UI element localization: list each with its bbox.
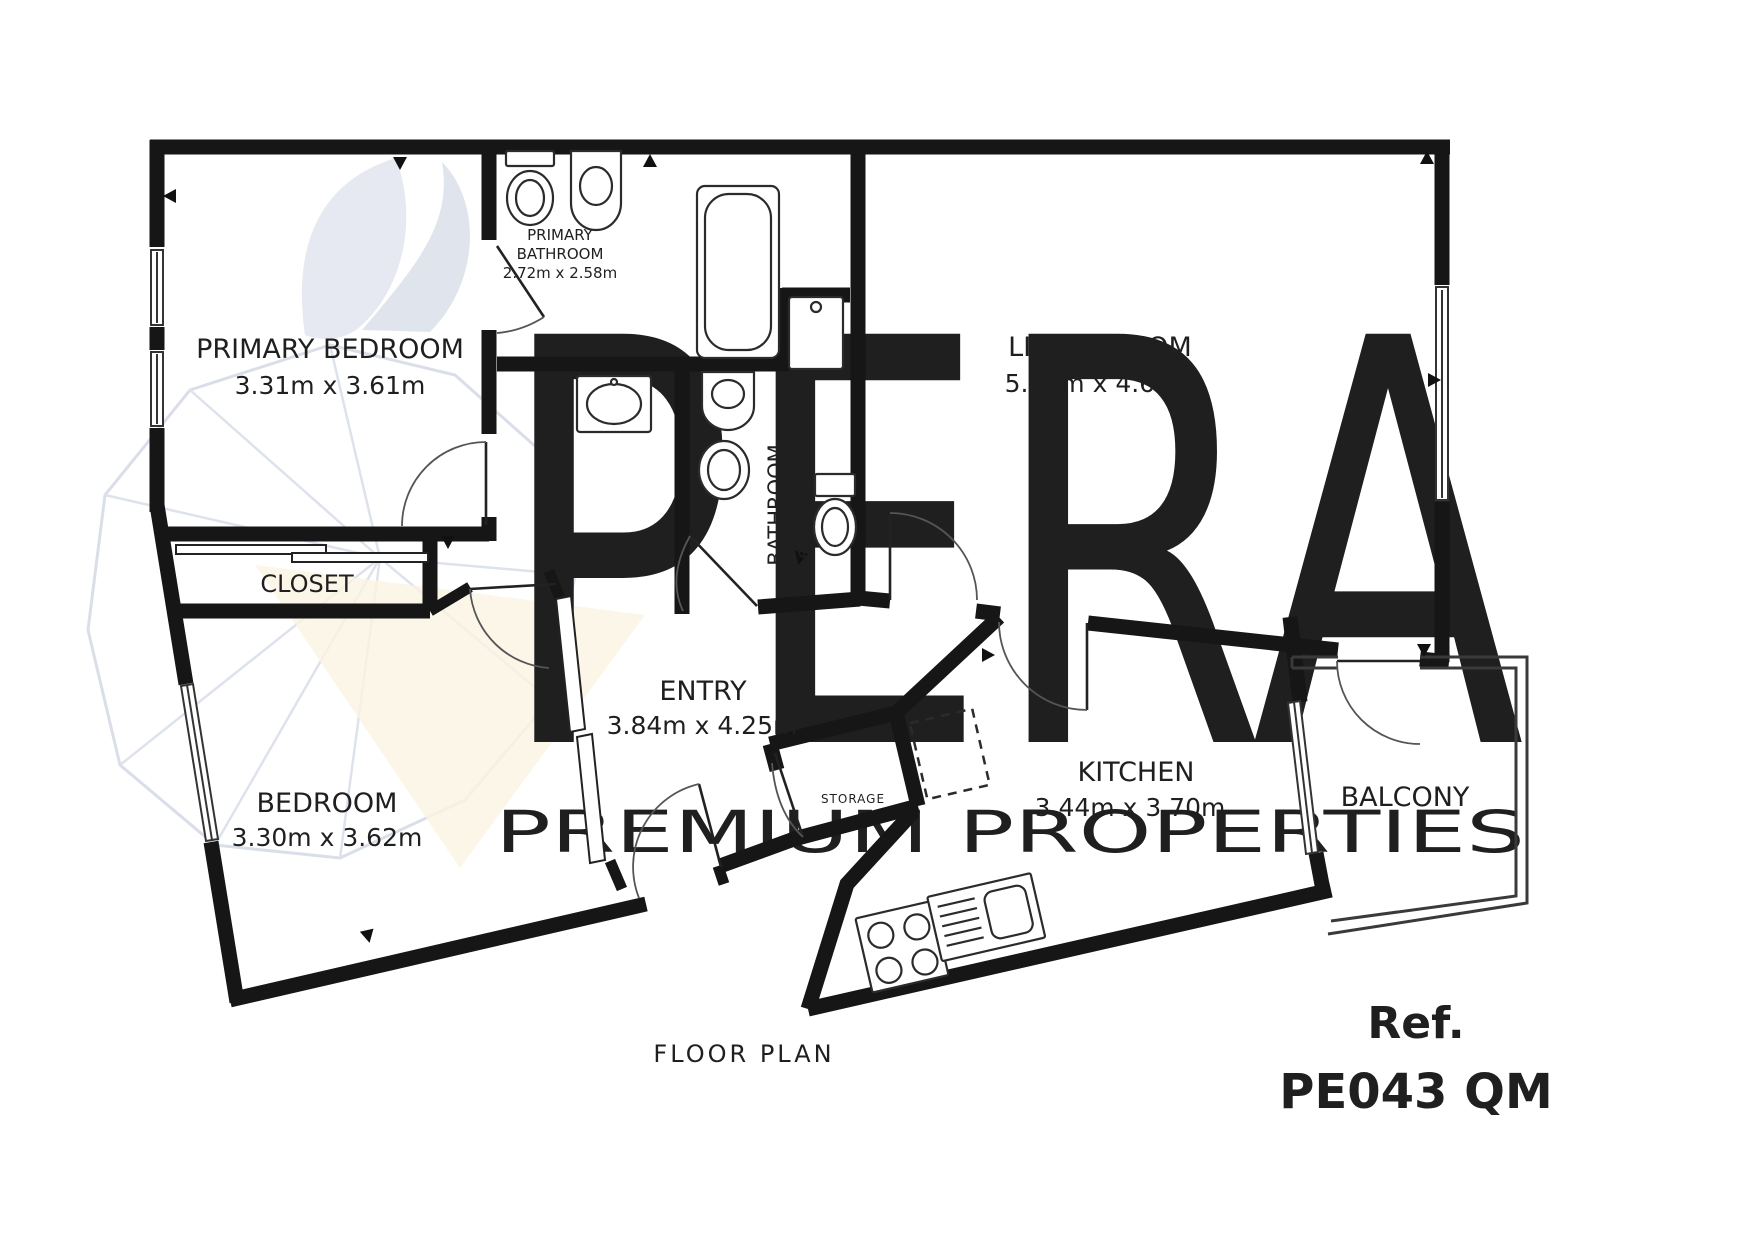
reference-code: PE043 QM (1279, 1064, 1552, 1120)
toilet-with-cistern (814, 474, 856, 555)
room-dims-bathroom: 1.66m x 2.98m (795, 433, 817, 578)
floor-plan-svg: PERA PREMIUM PROPERTIES (0, 0, 1748, 1240)
room-label-entry: ENTRY (659, 676, 747, 707)
room-dims-bedroom: 3.30m x 3.62m (232, 823, 423, 852)
reference-block: Ref. PE043 QM (1279, 998, 1552, 1120)
room-label-balcony: BALCONY (1341, 782, 1470, 813)
reference-label: Ref. (1367, 998, 1464, 1049)
pedestal-sink (571, 151, 621, 230)
toilet (506, 151, 554, 225)
room-dims-living-room: 5.25m x 4.62m (1005, 369, 1196, 398)
room-dims-primary-bathroom: 2.72m x 2.58m (503, 264, 617, 282)
room-dims-entry: 3.84m x 4.25m (607, 711, 798, 740)
room-label-primary-bathroom-line2: BATHROOM (517, 245, 604, 263)
bathtub (697, 186, 779, 358)
floor-plan-page: PERA PREMIUM PROPERTIES (0, 0, 1748, 1240)
room-dims-primary-bedroom: 3.31m x 3.61m (235, 371, 426, 400)
room-label-primary-bedroom: PRIMARY BEDROOM (196, 334, 464, 365)
wall-sink (702, 372, 754, 430)
room-label-kitchen: KITCHEN (1078, 757, 1195, 788)
washing-machine (789, 297, 843, 369)
watermark-brand-text: PERA (495, 223, 1526, 875)
room-label-primary-bathroom-line1: PRIMARY (527, 226, 594, 244)
room-label-bathroom: BATHROOM (764, 444, 788, 566)
vanity-sink (577, 376, 651, 432)
floor-plan-caption: FLOOR PLAN (653, 1040, 834, 1068)
kitchen-sink-drainboard (927, 873, 1045, 961)
room-label-storage: STORAGE (821, 792, 885, 806)
closet-sliding-doors (176, 545, 428, 562)
room-label-living-room: LIVING ROOM (1008, 332, 1192, 363)
room-dims-kitchen: 3.44m x 3.70m (1035, 793, 1226, 822)
room-label-bedroom: BEDROOM (257, 788, 398, 819)
room-label-closet: CLOSET (260, 570, 354, 598)
toilet-oval (699, 441, 749, 499)
